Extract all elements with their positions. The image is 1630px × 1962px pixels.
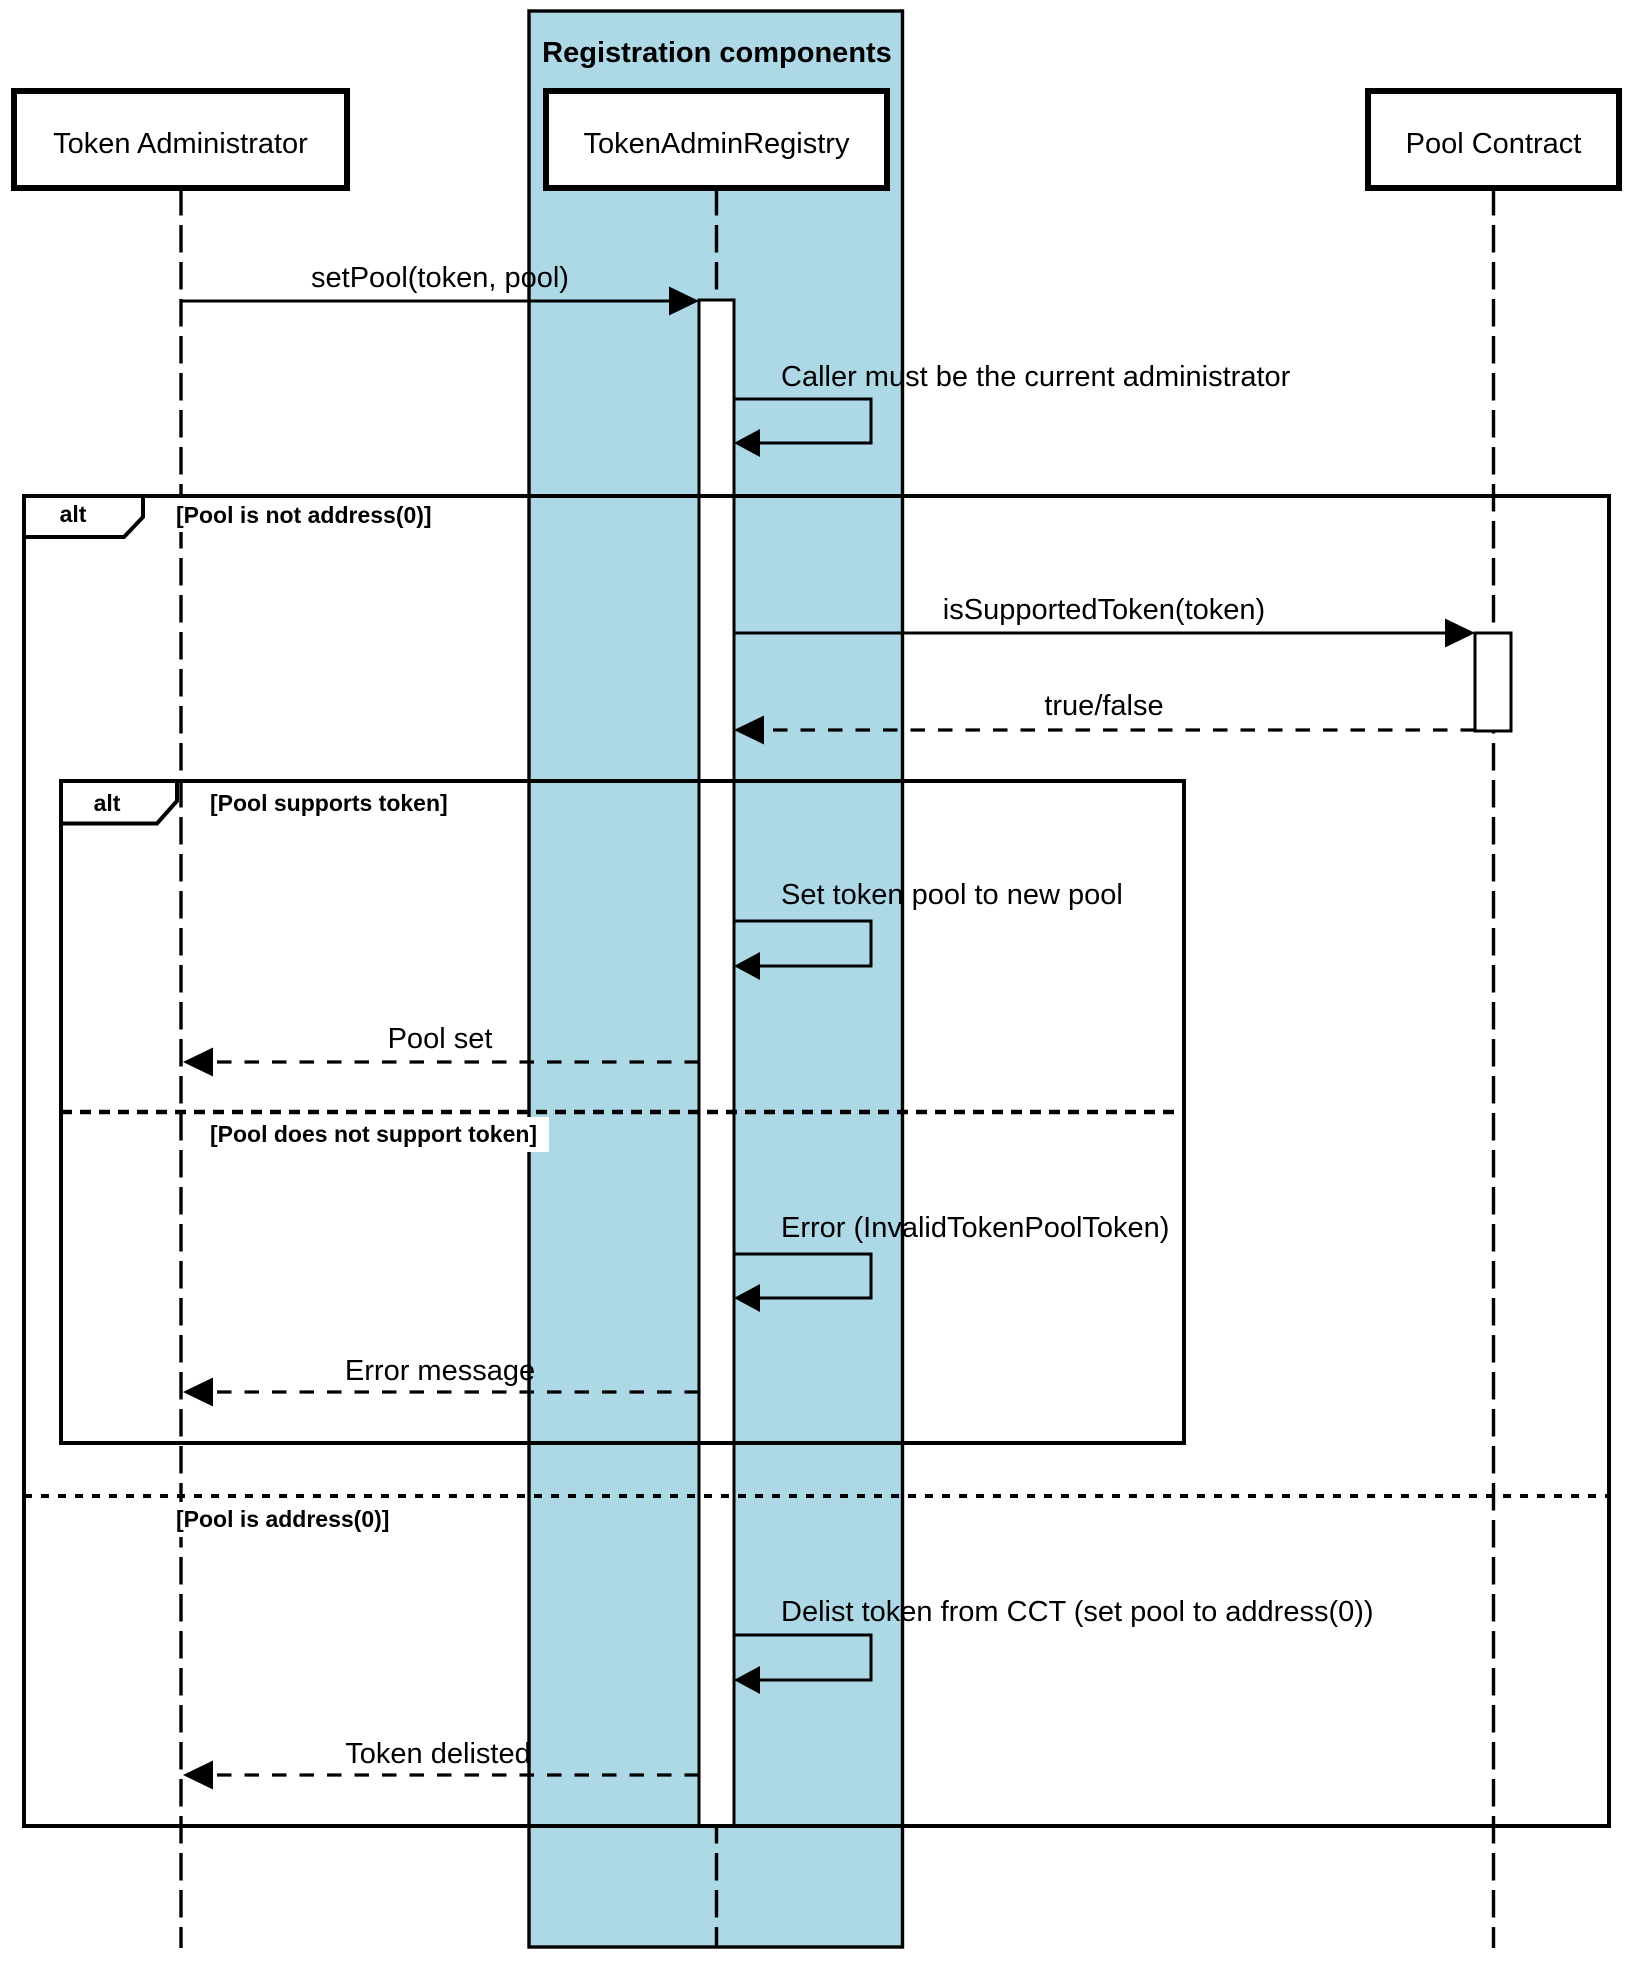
svg-text:Error message: Error message xyxy=(345,1355,535,1387)
svg-text:alt: alt xyxy=(94,790,121,816)
svg-text:Token Administrator: Token Administrator xyxy=(53,128,308,160)
svg-text:TokenAdminRegistry: TokenAdminRegistry xyxy=(584,128,850,160)
svg-text:Pool Contract: Pool Contract xyxy=(1406,128,1582,160)
svg-text:Set token pool to new pool: Set token pool to new pool xyxy=(781,879,1123,911)
svg-text:Error (InvalidTokenPoolToken): Error (InvalidTokenPoolToken) xyxy=(781,1212,1169,1244)
svg-text:[Pool is not address(0)]: [Pool is not address(0)] xyxy=(176,502,432,528)
svg-text:isSupportedToken(token): isSupportedToken(token) xyxy=(943,594,1265,626)
svg-text:Token delisted: Token delisted xyxy=(345,1738,530,1770)
svg-text:[Pool does not support token]: [Pool does not support token] xyxy=(210,1121,537,1147)
svg-text:alt: alt xyxy=(60,501,87,527)
svg-text:Pool set: Pool set xyxy=(388,1023,493,1055)
svg-text:Caller must be the current adm: Caller must be the current administrator xyxy=(781,361,1291,393)
svg-text:[Pool supports token]: [Pool supports token] xyxy=(210,790,448,816)
svg-text:setPool(token, pool): setPool(token, pool) xyxy=(311,262,569,294)
svg-text:true/false: true/false xyxy=(1044,690,1163,722)
svg-text:[Pool is address(0)]: [Pool is address(0)] xyxy=(176,1506,389,1532)
svg-text:Delist token from CCT (set poo: Delist token from CCT (set pool to addre… xyxy=(781,1596,1374,1628)
svg-text:Registration components: Registration components xyxy=(542,37,892,69)
